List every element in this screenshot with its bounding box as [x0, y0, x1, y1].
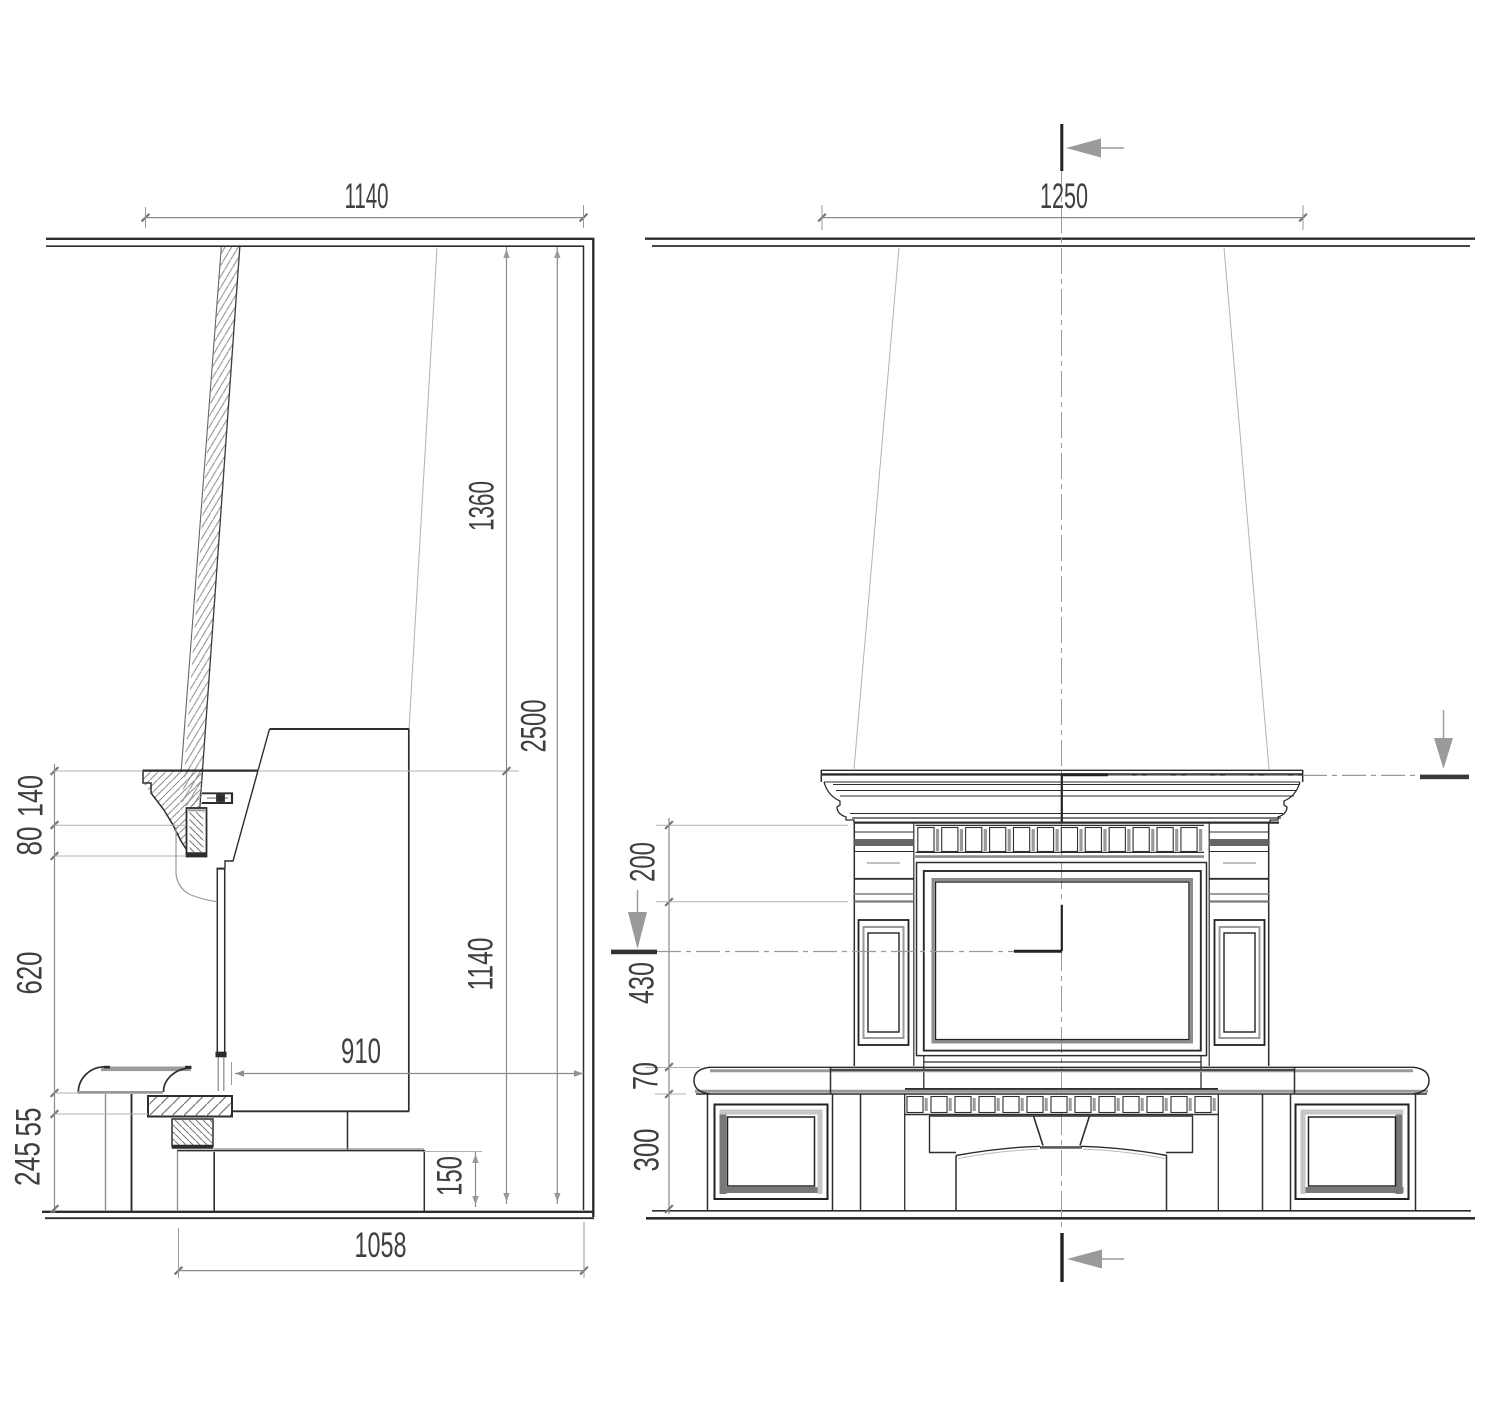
svg-text:70: 70 [626, 1062, 665, 1090]
svg-text:140: 140 [11, 775, 50, 817]
svg-text:80: 80 [10, 827, 49, 856]
svg-text:1058: 1058 [355, 1226, 407, 1265]
svg-text:150: 150 [430, 1156, 469, 1196]
svg-text:2500: 2500 [514, 700, 553, 753]
svg-text:1250: 1250 [1040, 177, 1088, 216]
svg-text:1140: 1140 [461, 938, 500, 991]
svg-text:245: 245 [8, 1142, 47, 1186]
svg-text:1140: 1140 [345, 177, 389, 216]
svg-text:200: 200 [623, 842, 662, 882]
svg-text:1360: 1360 [462, 481, 501, 531]
svg-text:910: 910 [341, 1032, 381, 1071]
svg-text:55: 55 [9, 1108, 48, 1137]
svg-text:620: 620 [10, 952, 49, 995]
svg-text:430: 430 [622, 962, 661, 1004]
svg-text:300: 300 [627, 1129, 666, 1172]
